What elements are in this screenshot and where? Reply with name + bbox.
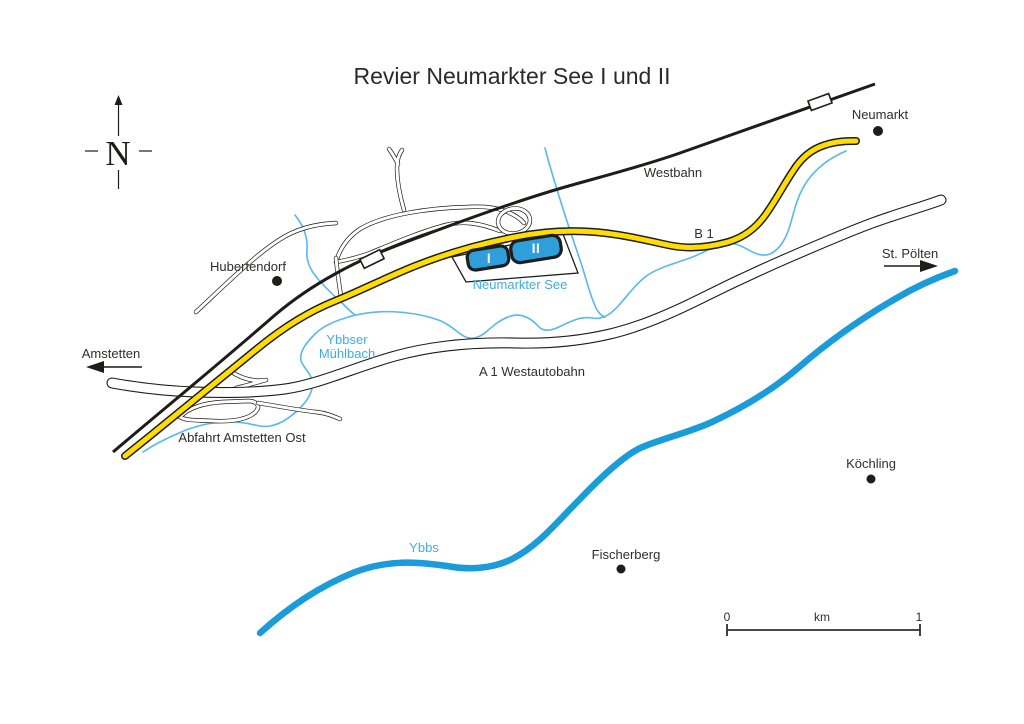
map-canvas: I II N 0 km 1 Revier Neumarkter See I un…: [0, 0, 1024, 724]
st-poelten-label: St. Pölten: [882, 246, 938, 261]
b1-road-surface: [125, 141, 856, 456]
scale-bar: 0 km 1: [724, 610, 923, 636]
revier-map: I II N 0 km 1 Revier Neumarkter See I un…: [0, 0, 1024, 724]
ybbser-muehlbach-label-line1: Ybbser: [326, 332, 368, 347]
map-title: Revier Neumarkter See I und II: [353, 63, 670, 89]
neumarkt-dot: [873, 126, 883, 136]
scale-start-label: 0: [724, 610, 731, 624]
abfahrt-label: Abfahrt Amstetten Ost: [178, 430, 306, 445]
amstetten-label: Amstetten: [82, 346, 141, 361]
ramp-north-surface: [230, 371, 266, 388]
lake-1-numeral: I: [487, 251, 491, 266]
lake-2-numeral: II: [532, 241, 541, 256]
railway-station-symbol-east: [808, 94, 832, 111]
b1-label: B 1: [694, 226, 714, 241]
minor-road-north-spur: [389, 149, 404, 210]
b1-road: [125, 141, 856, 456]
westbahn-label: Westbahn: [644, 165, 702, 180]
amstetten-arrow-head: [86, 361, 104, 373]
b1-road-casing: [125, 141, 856, 456]
minor-road-connector: [336, 258, 341, 297]
fischerberg-dot: [617, 565, 626, 574]
scale-end-label: 1: [916, 610, 923, 624]
neumarkter-see-label: Neumarkter See: [473, 277, 568, 292]
compass-north-arrowhead: [115, 95, 123, 105]
compass-rose: N: [85, 95, 152, 189]
direction-arrow-st-poelten: [884, 260, 938, 272]
direction-arrow-amstetten: [86, 361, 142, 373]
koechling-dot: [867, 475, 876, 484]
compass-n-letter: N: [105, 134, 130, 173]
scale-unit-label: km: [814, 610, 830, 624]
fischerberg-label: Fischerberg: [592, 547, 661, 562]
hubertendorf-label: Hubertendorf: [210, 259, 286, 274]
a1-label: A 1 Westautobahn: [479, 364, 585, 379]
ybbs-river: [260, 271, 955, 633]
ybbs-label: Ybbs: [409, 540, 439, 555]
st-poelten-arrow-head: [920, 260, 938, 272]
neumarkt-label: Neumarkt: [852, 107, 909, 122]
hubertendorf-dot: [272, 276, 282, 286]
minor-road-north-spur-surface: [389, 149, 404, 210]
koechling-label: Köchling: [846, 456, 896, 471]
ybbser-muehlbach-label-line2: Mühlbach: [319, 346, 375, 361]
